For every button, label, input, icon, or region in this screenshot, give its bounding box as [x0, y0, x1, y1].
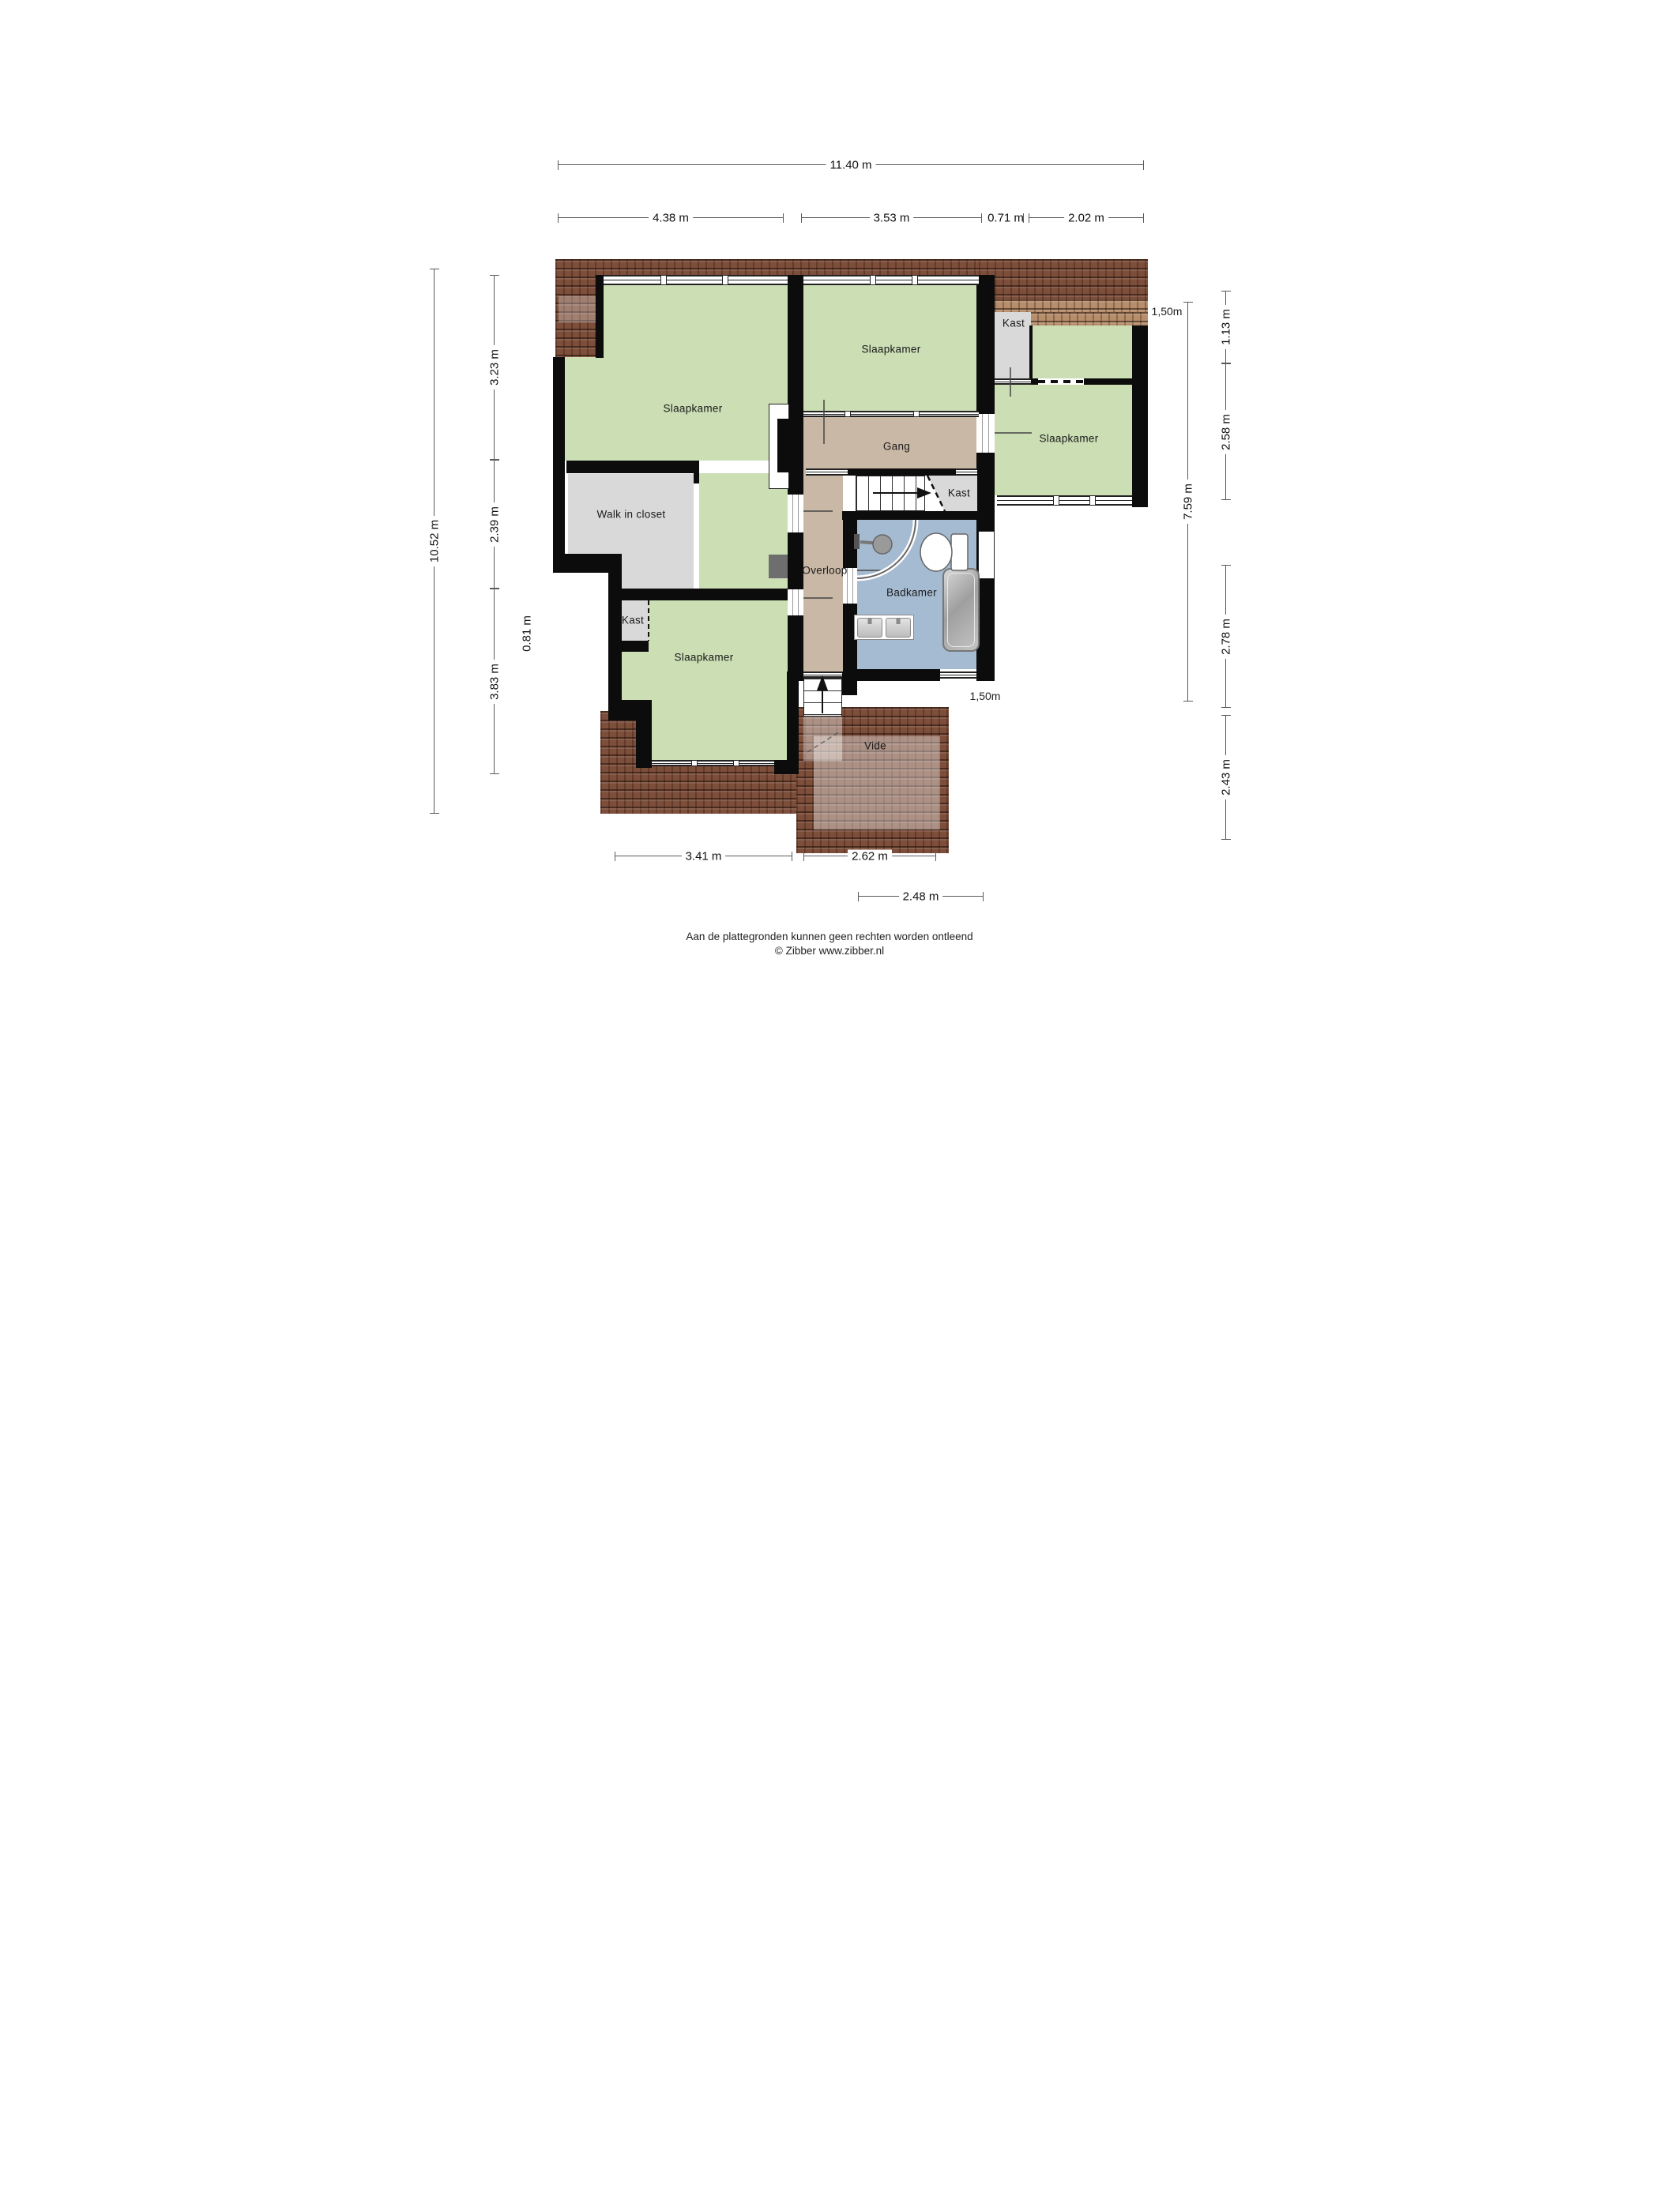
window-slaapkamer-bottom [652, 760, 774, 766]
window-slaapkamer-right-south [997, 495, 1132, 506]
wall [608, 700, 652, 720]
dim-right-inner: 7.59 m [1187, 302, 1188, 702]
window-divider [1053, 495, 1059, 506]
gang-south-window-left [806, 468, 848, 476]
wall [608, 589, 789, 600]
dim-bottom-seg-1: 3.41 m [615, 856, 792, 856]
wall [842, 671, 857, 695]
dim-label: 3.53 m [870, 212, 914, 225]
dim-right-seg-4: 2.43 m [1225, 715, 1226, 840]
window-divider [691, 760, 698, 766]
door-overloop-slaapkamer-tl [788, 495, 803, 532]
window-divider [722, 275, 728, 285]
window-divider [845, 411, 851, 417]
sink-left-icon [857, 618, 882, 638]
roof-right-step2 [1029, 312, 1148, 325]
dim-top-seg-2: 3.53 m [801, 217, 982, 218]
dim-right-seg-1: 1.13 m [1225, 291, 1226, 363]
height-mark-vide: 1,50m [970, 690, 1001, 702]
label-kast-bottom-left: Kast [622, 615, 644, 626]
wall [848, 468, 956, 476]
dim-label: 4.38 m [649, 212, 693, 225]
disclaimer-text: Aan de plattegronden kunnen geen rechten… [415, 931, 1244, 942]
wall [694, 473, 699, 483]
dim-left-seg-2: 2.39 m [494, 460, 495, 589]
window-divider [660, 275, 667, 285]
dim-label: 10.52 m [428, 516, 442, 566]
chimney-block [777, 419, 789, 472]
wall [788, 275, 803, 495]
overloop-south-window [803, 671, 842, 678]
label-slaapkamer-right: Slaapkamer [1039, 433, 1098, 445]
dim-left-small: 0.81 m [521, 615, 534, 652]
dim-right-seg-3: 2.78 m [1225, 565, 1226, 708]
label-vide: Vide [864, 740, 886, 752]
door-gang-slaapkamer-right [976, 414, 995, 453]
wall [1132, 325, 1148, 507]
room-walk-in-closet-lower [622, 554, 694, 589]
label-badkamer: Badkamer [886, 587, 937, 599]
copyright-text: © Zibber www.zibber.nl [415, 945, 1244, 957]
floorplan-page: Slaapkamer Slaapkamer Slaapkamer Slaapka… [415, 0, 1244, 1106]
wall [566, 461, 699, 473]
wall [788, 532, 803, 589]
height-mark-right: 1,50m [1152, 305, 1183, 318]
label-kast-top-right: Kast [1003, 318, 1025, 329]
room-slaapkamer-top-left [604, 285, 788, 358]
dim-top-seg-4: 2.02 m [1029, 217, 1144, 218]
wall [596, 275, 604, 358]
dim-label: 2.62 m [848, 850, 892, 863]
label-walk-in-closet: Walk in closet [597, 509, 666, 521]
duct-block [769, 555, 788, 578]
dashed-opening-1-50m [1038, 378, 1084, 385]
dim-left-total: 10.52 m [434, 269, 434, 814]
dim-bottom-seg-2: 2.62 m [803, 856, 936, 856]
label-slaapkamer-top-middle: Slaapkamer [861, 344, 920, 355]
dim-left-seg-3: 3.83 m [494, 589, 495, 774]
dim-left-seg-1: 3.23 m [494, 275, 495, 460]
wall [1084, 378, 1132, 385]
roof-top-right [979, 259, 1148, 299]
label-gang: Gang [883, 441, 910, 453]
window-divider [733, 760, 739, 766]
wall [788, 615, 803, 671]
dim-label: 2.48 m [899, 890, 943, 904]
room-slaapkamer-right-upper [1033, 325, 1132, 378]
dim-label: 2.58 m [1220, 410, 1233, 454]
gang-south-window-right [956, 468, 977, 476]
label-slaapkamer-top-left: Slaapkamer [663, 403, 722, 415]
label-slaapkamer-bottom: Slaapkamer [674, 652, 733, 664]
wall [608, 641, 649, 652]
window-slaapkamer-mid [803, 275, 979, 285]
badkamer-south-window [940, 671, 976, 679]
room-overloop [803, 417, 843, 671]
dim-label: 3.41 m [682, 850, 726, 863]
dim-top-seg-3: 0.71 m [987, 217, 1024, 218]
dim-label: 2.43 m [1220, 755, 1233, 799]
window-divider [912, 275, 918, 285]
roof-left-block [555, 259, 596, 358]
wall [976, 669, 995, 681]
wall [1029, 325, 1033, 378]
wall [1031, 378, 1038, 385]
window-gang-north [803, 411, 979, 417]
wall [553, 554, 622, 573]
dim-label: 1.13 m [1220, 305, 1233, 349]
room-slaapkamer-bottom-lower [652, 700, 788, 760]
wall [976, 275, 995, 414]
wall [553, 357, 565, 559]
dim-top-total: 11.40 m [558, 164, 1144, 165]
wall [843, 520, 857, 568]
dim-label: 0.71 m [984, 212, 1028, 225]
dim-label: 2.39 m [488, 502, 502, 547]
stairs-down [803, 678, 842, 717]
sink-right-icon [886, 618, 911, 638]
door-overloop-slaapkamer-bottom [788, 589, 803, 615]
window-slaapkamer-tl [604, 275, 788, 285]
wall [636, 720, 652, 760]
toilet-niche [978, 531, 995, 579]
dim-right-seg-2: 2.58 m [1225, 363, 1226, 500]
dim-label: 3.23 m [488, 345, 502, 389]
sink-counter [854, 615, 914, 640]
wall [794, 671, 803, 681]
dim-label: 3.83 m [488, 660, 502, 704]
wall [787, 671, 799, 774]
label-overloop: Overloop [802, 565, 847, 577]
dim-top-seg-1: 4.38 m [558, 217, 784, 218]
window-divider [913, 411, 920, 417]
dim-label: 11.40 m [826, 159, 875, 172]
label-kast-middle: Kast [948, 487, 970, 499]
kast-tr-window [995, 378, 1031, 385]
dim-label: 7.59 m [1182, 480, 1195, 524]
bathtub [942, 568, 980, 652]
wall [843, 669, 940, 681]
wall [636, 757, 652, 768]
wall [842, 511, 995, 520]
window-divider [870, 275, 876, 285]
window-divider [1089, 495, 1096, 506]
stairs-main [856, 476, 925, 511]
dim-label: 2.02 m [1064, 212, 1108, 225]
dim-label: 2.78 m [1220, 615, 1233, 659]
roof-right-step1 [987, 299, 1148, 312]
dim-bottom-offset: 2.48 m [858, 896, 984, 897]
